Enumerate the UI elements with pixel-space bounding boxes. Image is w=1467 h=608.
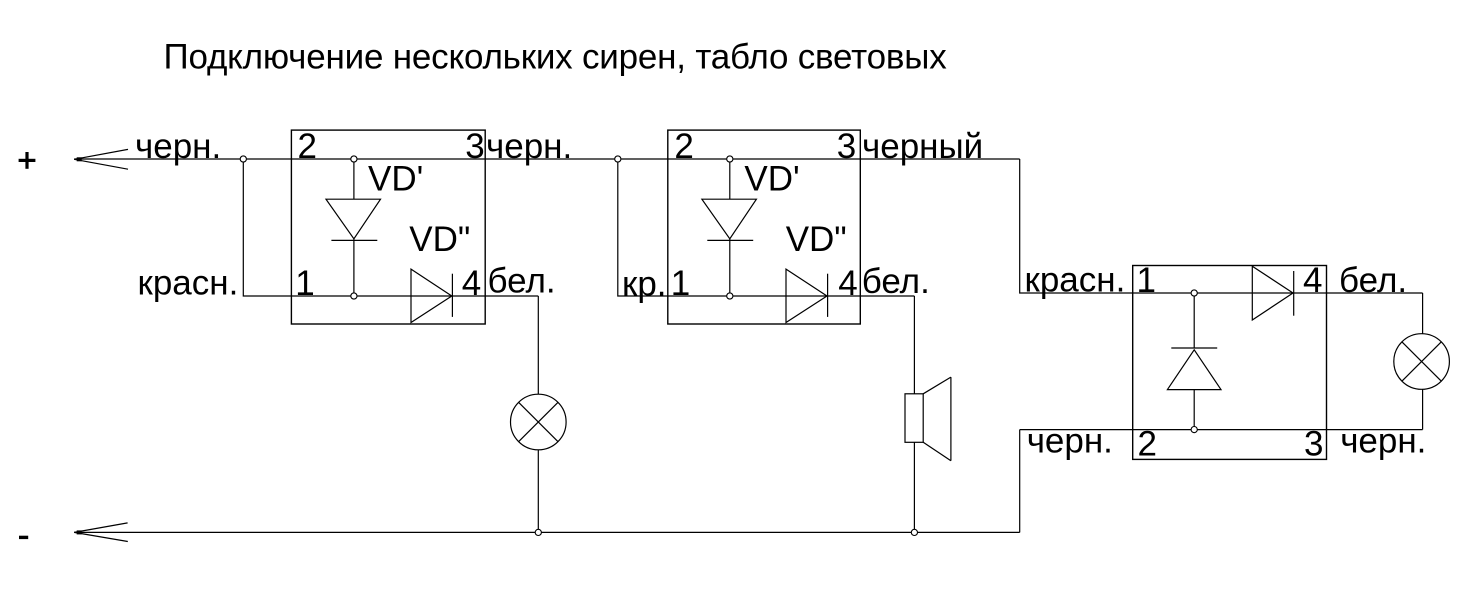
svg-text:3: 3 <box>465 127 484 166</box>
svg-text:4: 4 <box>838 264 857 303</box>
svg-text:2: 2 <box>298 127 317 166</box>
svg-text:бел.: бел. <box>862 262 930 301</box>
svg-text:1: 1 <box>671 264 690 303</box>
svg-text:черный: черный <box>862 127 983 166</box>
svg-text:4: 4 <box>462 264 481 303</box>
svg-text:VD": VD" <box>786 220 847 259</box>
svg-text:VD': VD' <box>368 159 423 198</box>
svg-text:3: 3 <box>1304 425 1323 464</box>
svg-text:красн.: красн. <box>138 264 239 303</box>
svg-text:черн.: черн. <box>135 127 221 166</box>
svg-text:бел.: бел. <box>488 262 556 301</box>
svg-text:черн.: черн. <box>486 127 572 166</box>
svg-text:3: 3 <box>837 127 856 166</box>
svg-text:черн.: черн. <box>1027 422 1113 461</box>
svg-text:кр.: кр. <box>622 265 667 304</box>
svg-text:черн.: черн. <box>1340 422 1426 461</box>
svg-text:бел.: бел. <box>1339 261 1407 300</box>
svg-text:VD': VD' <box>744 159 799 198</box>
svg-text:2: 2 <box>1138 425 1157 464</box>
svg-text:Подключение нескольких сирен,: Подключение нескольких сирен, табло свет… <box>164 38 948 77</box>
svg-text:красн.: красн. <box>1025 261 1126 300</box>
svg-text:1: 1 <box>295 264 314 303</box>
svg-text:2: 2 <box>674 127 693 166</box>
svg-text:VD": VD" <box>409 220 470 259</box>
svg-text:4: 4 <box>1303 261 1322 300</box>
svg-text:1: 1 <box>1137 261 1156 300</box>
